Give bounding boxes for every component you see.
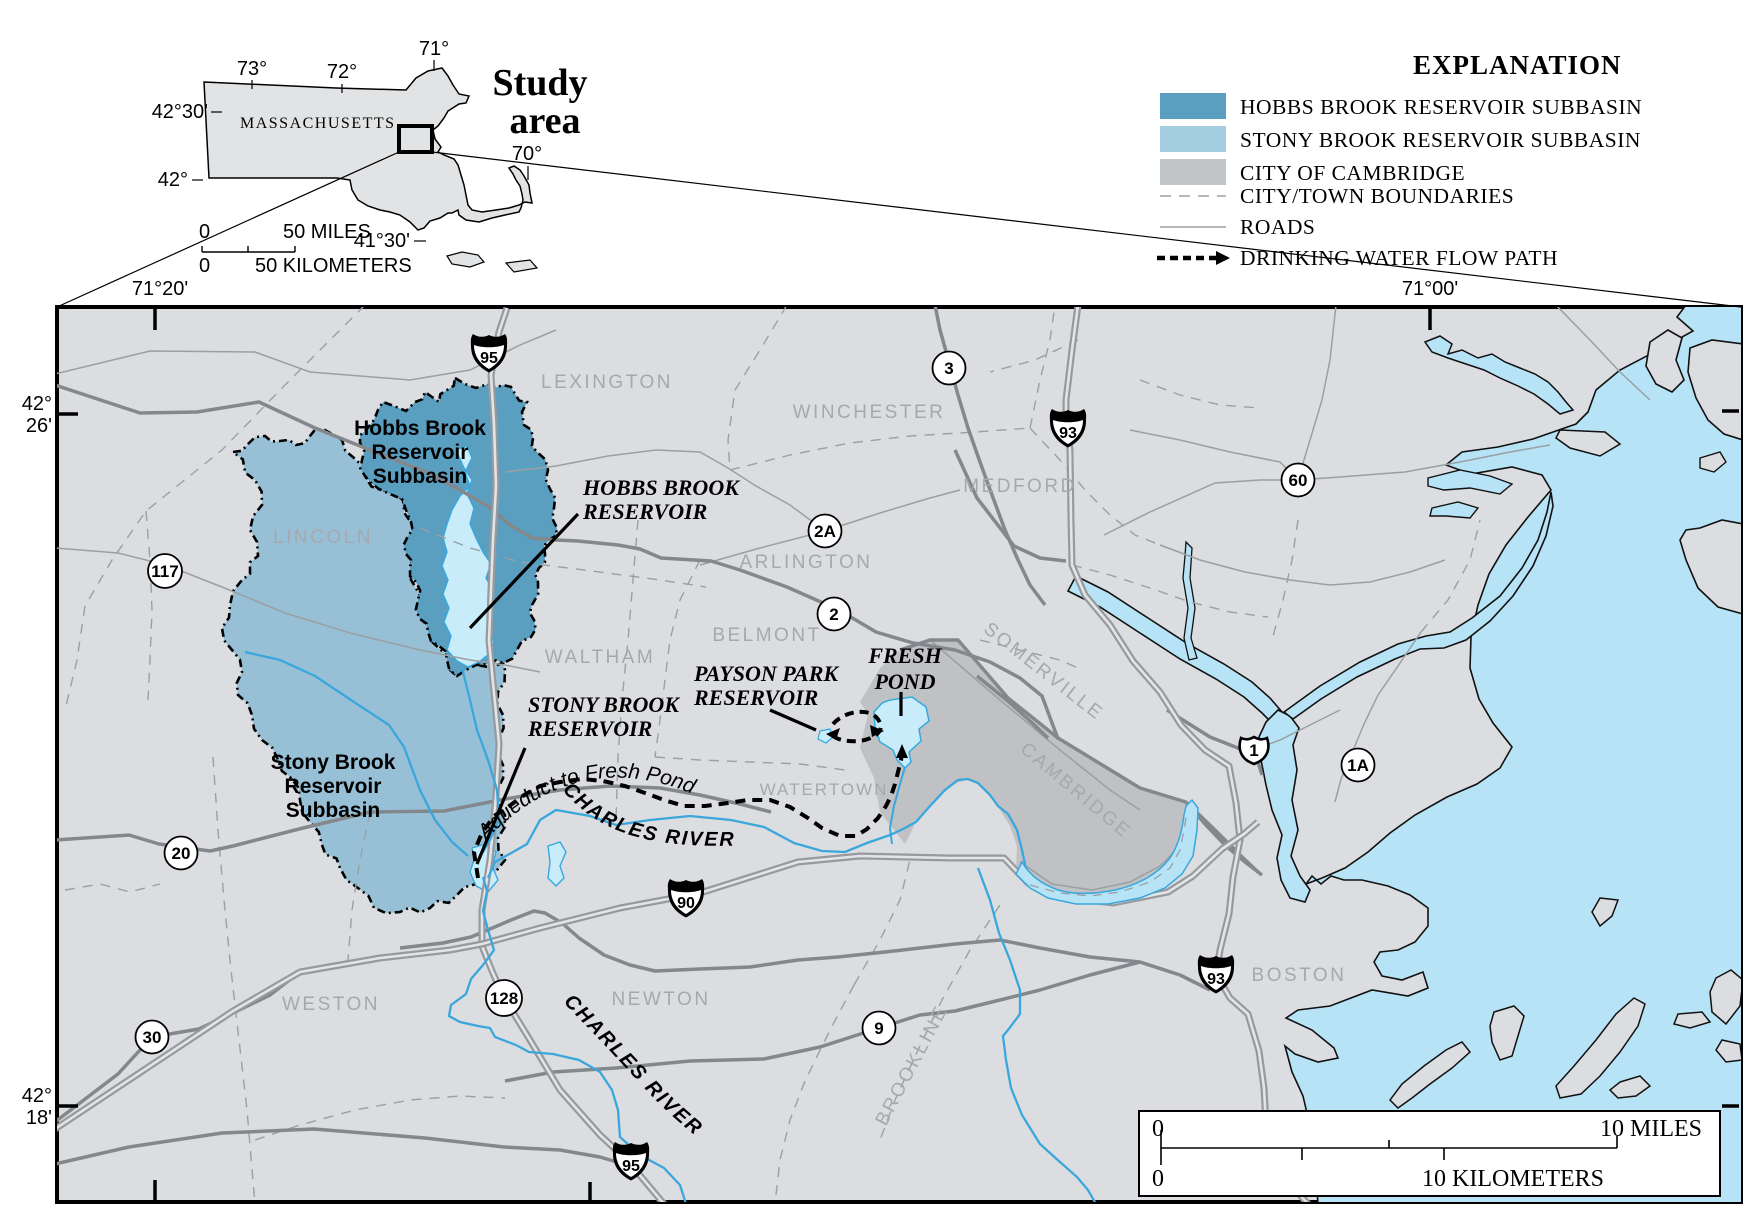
svg-text:MEDFORD: MEDFORD <box>963 476 1077 497</box>
svg-text:72°: 72° <box>327 61 357 83</box>
svg-text:Subbasin: Subbasin <box>286 799 381 822</box>
svg-text:60: 60 <box>1289 471 1308 490</box>
svg-text:2A: 2A <box>814 522 836 541</box>
svg-text:HOBBS BROOK: HOBBS BROOK <box>582 475 740 500</box>
svg-text:Reservoir: Reservoir <box>285 775 382 798</box>
svg-text:42°: 42° <box>22 1085 52 1107</box>
svg-text:ROADS: ROADS <box>1240 215 1315 239</box>
svg-text:ARLINGTON: ARLINGTON <box>739 552 872 573</box>
svg-text:BOSTON: BOSTON <box>1252 965 1347 986</box>
svg-text:95: 95 <box>622 1158 640 1175</box>
svg-text:POND: POND <box>873 669 935 694</box>
svg-text:2: 2 <box>829 605 838 624</box>
svg-text:1: 1 <box>1249 741 1258 760</box>
svg-text:MASSACHUSETTS: MASSACHUSETTS <box>240 115 396 132</box>
svg-text:117: 117 <box>151 562 178 581</box>
svg-text:Stony Brook: Stony Brook <box>271 751 396 774</box>
svg-text:area: area <box>509 100 580 142</box>
svg-text:95: 95 <box>480 350 498 367</box>
svg-text:0: 0 <box>1152 1166 1164 1192</box>
svg-text:42°: 42° <box>22 393 52 415</box>
svg-text:71°00': 71°00' <box>1402 278 1458 300</box>
svg-text:WATERTOWN: WATERTOWN <box>760 780 889 799</box>
svg-text:10 MILES: 10 MILES <box>1600 1116 1702 1142</box>
svg-text:Hobbs Brook: Hobbs Brook <box>354 417 486 440</box>
svg-text:RESERVOIR: RESERVOIR <box>527 716 652 741</box>
svg-text:71°20': 71°20' <box>132 278 188 300</box>
svg-text:STONY BROOK RESERVOIR SUBBASIN: STONY BROOK RESERVOIR SUBBASIN <box>1240 128 1641 152</box>
svg-text:CITY/TOWN BOUNDARIES: CITY/TOWN BOUNDARIES <box>1240 184 1514 208</box>
svg-text:1A: 1A <box>1347 756 1369 775</box>
svg-text:LINCOLN: LINCOLN <box>273 527 373 548</box>
svg-text:0: 0 <box>199 255 210 277</box>
svg-text:FRESH: FRESH <box>867 643 942 668</box>
svg-text:RESERVOIR: RESERVOIR <box>582 499 707 524</box>
svg-text:26': 26' <box>26 415 52 437</box>
svg-text:71°: 71° <box>419 38 449 60</box>
svg-text:30: 30 <box>143 1028 162 1047</box>
svg-text:HOBBS BROOK RESERVOIR SUBBASIN: HOBBS BROOK RESERVOIR SUBBASIN <box>1240 95 1642 119</box>
svg-text:Study: Study <box>492 62 587 104</box>
svg-text:LEXINGTON: LEXINGTON <box>541 372 673 393</box>
svg-text:STONY BROOK: STONY BROOK <box>528 692 680 717</box>
svg-text:50 MILES: 50 MILES <box>283 221 371 243</box>
svg-text:90: 90 <box>677 895 695 912</box>
svg-text:70°: 70° <box>512 143 542 165</box>
svg-text:9: 9 <box>874 1019 883 1038</box>
svg-text:BELMONT: BELMONT <box>712 625 821 646</box>
svg-text:93: 93 <box>1207 971 1225 988</box>
svg-text:0: 0 <box>1152 1116 1164 1142</box>
svg-text:WESTON: WESTON <box>282 994 380 1015</box>
svg-text:Subbasin: Subbasin <box>373 465 468 488</box>
svg-text:PAYSON PARK: PAYSON PARK <box>693 661 839 686</box>
svg-text:93: 93 <box>1059 425 1077 442</box>
svg-text:EXPLANATION: EXPLANATION <box>1413 50 1622 80</box>
svg-text:CITY OF CAMBRIDGE: CITY OF CAMBRIDGE <box>1240 161 1465 185</box>
svg-text:42°: 42° <box>158 169 188 191</box>
svg-text:50 KILOMETERS: 50 KILOMETERS <box>255 255 412 277</box>
svg-text:0: 0 <box>199 221 210 243</box>
svg-text:DRINKING WATER FLOW PATH: DRINKING WATER FLOW PATH <box>1240 246 1558 270</box>
svg-text:Reservoir: Reservoir <box>372 441 469 464</box>
svg-text:42°30': 42°30' <box>152 101 208 123</box>
svg-text:20: 20 <box>172 844 191 863</box>
svg-text:WALTHAM: WALTHAM <box>545 647 655 668</box>
svg-text:73°: 73° <box>237 58 267 80</box>
svg-text:RESERVOIR: RESERVOIR <box>693 685 818 710</box>
svg-text:3: 3 <box>944 359 953 378</box>
svg-text:WINCHESTER: WINCHESTER <box>793 402 946 423</box>
svg-text:NEWTON: NEWTON <box>611 989 710 1010</box>
svg-text:18': 18' <box>26 1107 52 1129</box>
svg-text:10 KILOMETERS: 10 KILOMETERS <box>1422 1166 1604 1192</box>
svg-text:128: 128 <box>490 989 518 1008</box>
